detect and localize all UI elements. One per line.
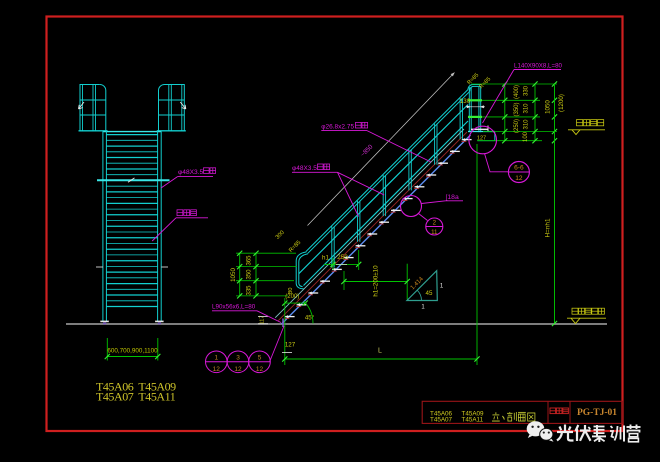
svg-text:φ48X3.5: φ48X3.5	[292, 165, 317, 172]
svg-text:310: 310	[524, 119, 530, 130]
svg-text:PG-TJ-01: PG-TJ-01	[577, 408, 617, 418]
svg-text:(200): (200)	[285, 294, 299, 300]
svg-text:h1=200±10: h1=200±10	[373, 265, 380, 297]
svg-text:330: 330	[524, 85, 530, 96]
svg-text:T45A07: T45A07	[430, 416, 453, 423]
svg-text:1: 1	[214, 355, 218, 362]
svg-text:L: L	[378, 348, 382, 355]
svg-text:100: 100	[523, 131, 529, 142]
svg-text:12: 12	[256, 366, 264, 373]
svg-text:T45A07 T45A11: T45A07 T45A11	[96, 390, 176, 404]
svg-text:(1200): (1200)	[558, 94, 565, 112]
svg-text:310: 310	[524, 103, 530, 114]
svg-text:335: 335	[246, 285, 252, 296]
svg-text:1050: 1050	[230, 268, 237, 282]
svg-text:45: 45	[426, 290, 433, 297]
svg-text:h1: h1	[322, 255, 329, 262]
svg-text:80: 80	[288, 287, 294, 293]
svg-text:12: 12	[515, 175, 523, 182]
svg-text:365: 365	[246, 255, 252, 266]
svg-text:(250): (250)	[514, 119, 520, 133]
svg-text:T45A11: T45A11	[462, 416, 484, 423]
svg-text:φ26.8x2.75: φ26.8x2.75	[321, 123, 354, 130]
svg-text:2: 2	[433, 220, 437, 227]
svg-text:6-6: 6-6	[514, 165, 524, 172]
svg-text:11: 11	[431, 229, 438, 236]
svg-text:127: 127	[285, 342, 296, 349]
svg-text:350: 350	[246, 269, 252, 280]
svg-text:(350): (350)	[514, 102, 520, 116]
svg-text:1050: 1050	[545, 100, 552, 114]
svg-text:12: 12	[213, 366, 221, 373]
svg-text:φ48X3.5: φ48X3.5	[178, 169, 204, 176]
svg-text:600,700,900,1100: 600,700,900,1100	[107, 348, 158, 355]
svg-text:H=nh1: H=nh1	[545, 218, 552, 237]
svg-text:130: 130	[460, 98, 471, 105]
svg-text:250: 250	[337, 254, 348, 261]
svg-text:5: 5	[258, 355, 262, 362]
svg-text:12: 12	[234, 366, 242, 373]
svg-text:(400): (400)	[514, 85, 520, 99]
svg-text:3: 3	[236, 355, 240, 362]
svg-text:[18a: [18a	[446, 194, 459, 201]
svg-text:L90x56x6,L=80: L90x56x6,L=80	[212, 304, 256, 311]
svg-text:L140X90X8,L=80: L140X90X8,L=80	[514, 63, 563, 70]
